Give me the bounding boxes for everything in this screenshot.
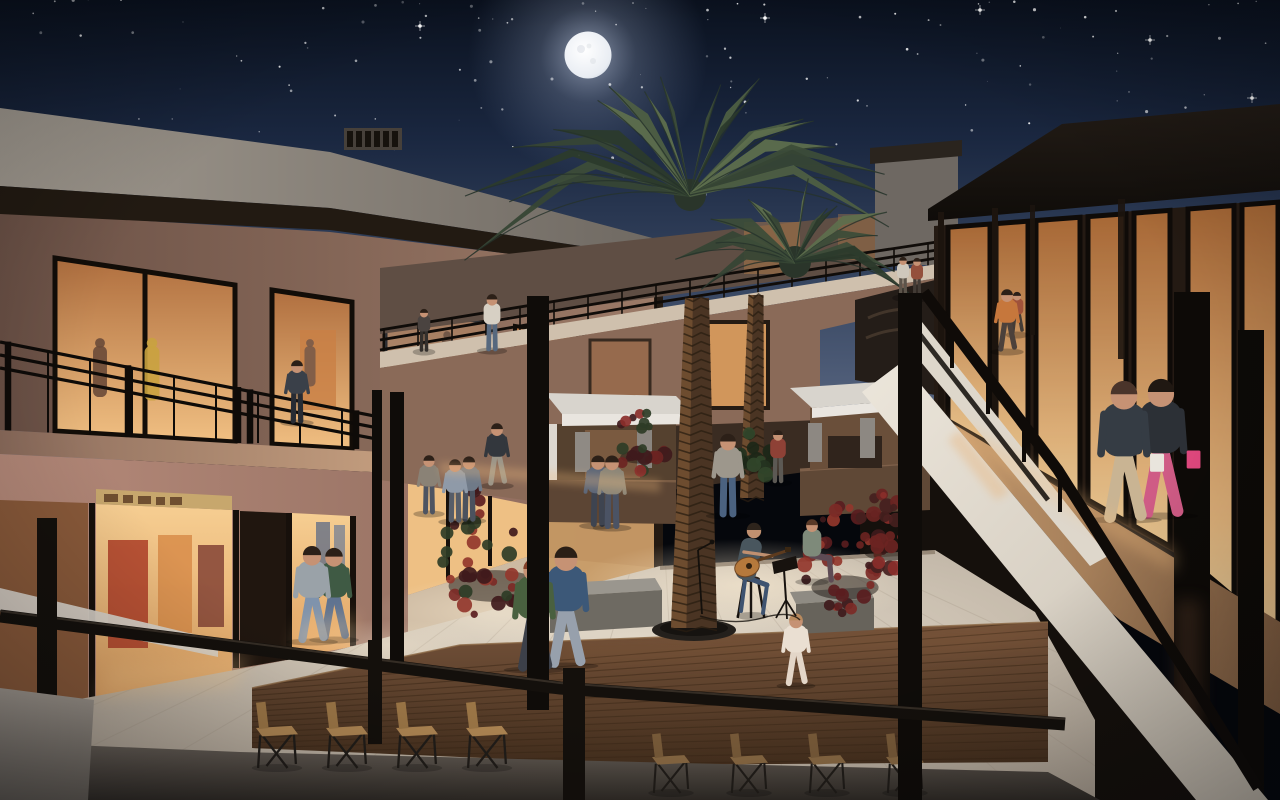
mall-courtyard-rendering: Night-time 3D rendering of a two-story o…	[0, 0, 1280, 800]
vignette	[0, 0, 1280, 800]
rendered-scene	[0, 0, 1280, 800]
